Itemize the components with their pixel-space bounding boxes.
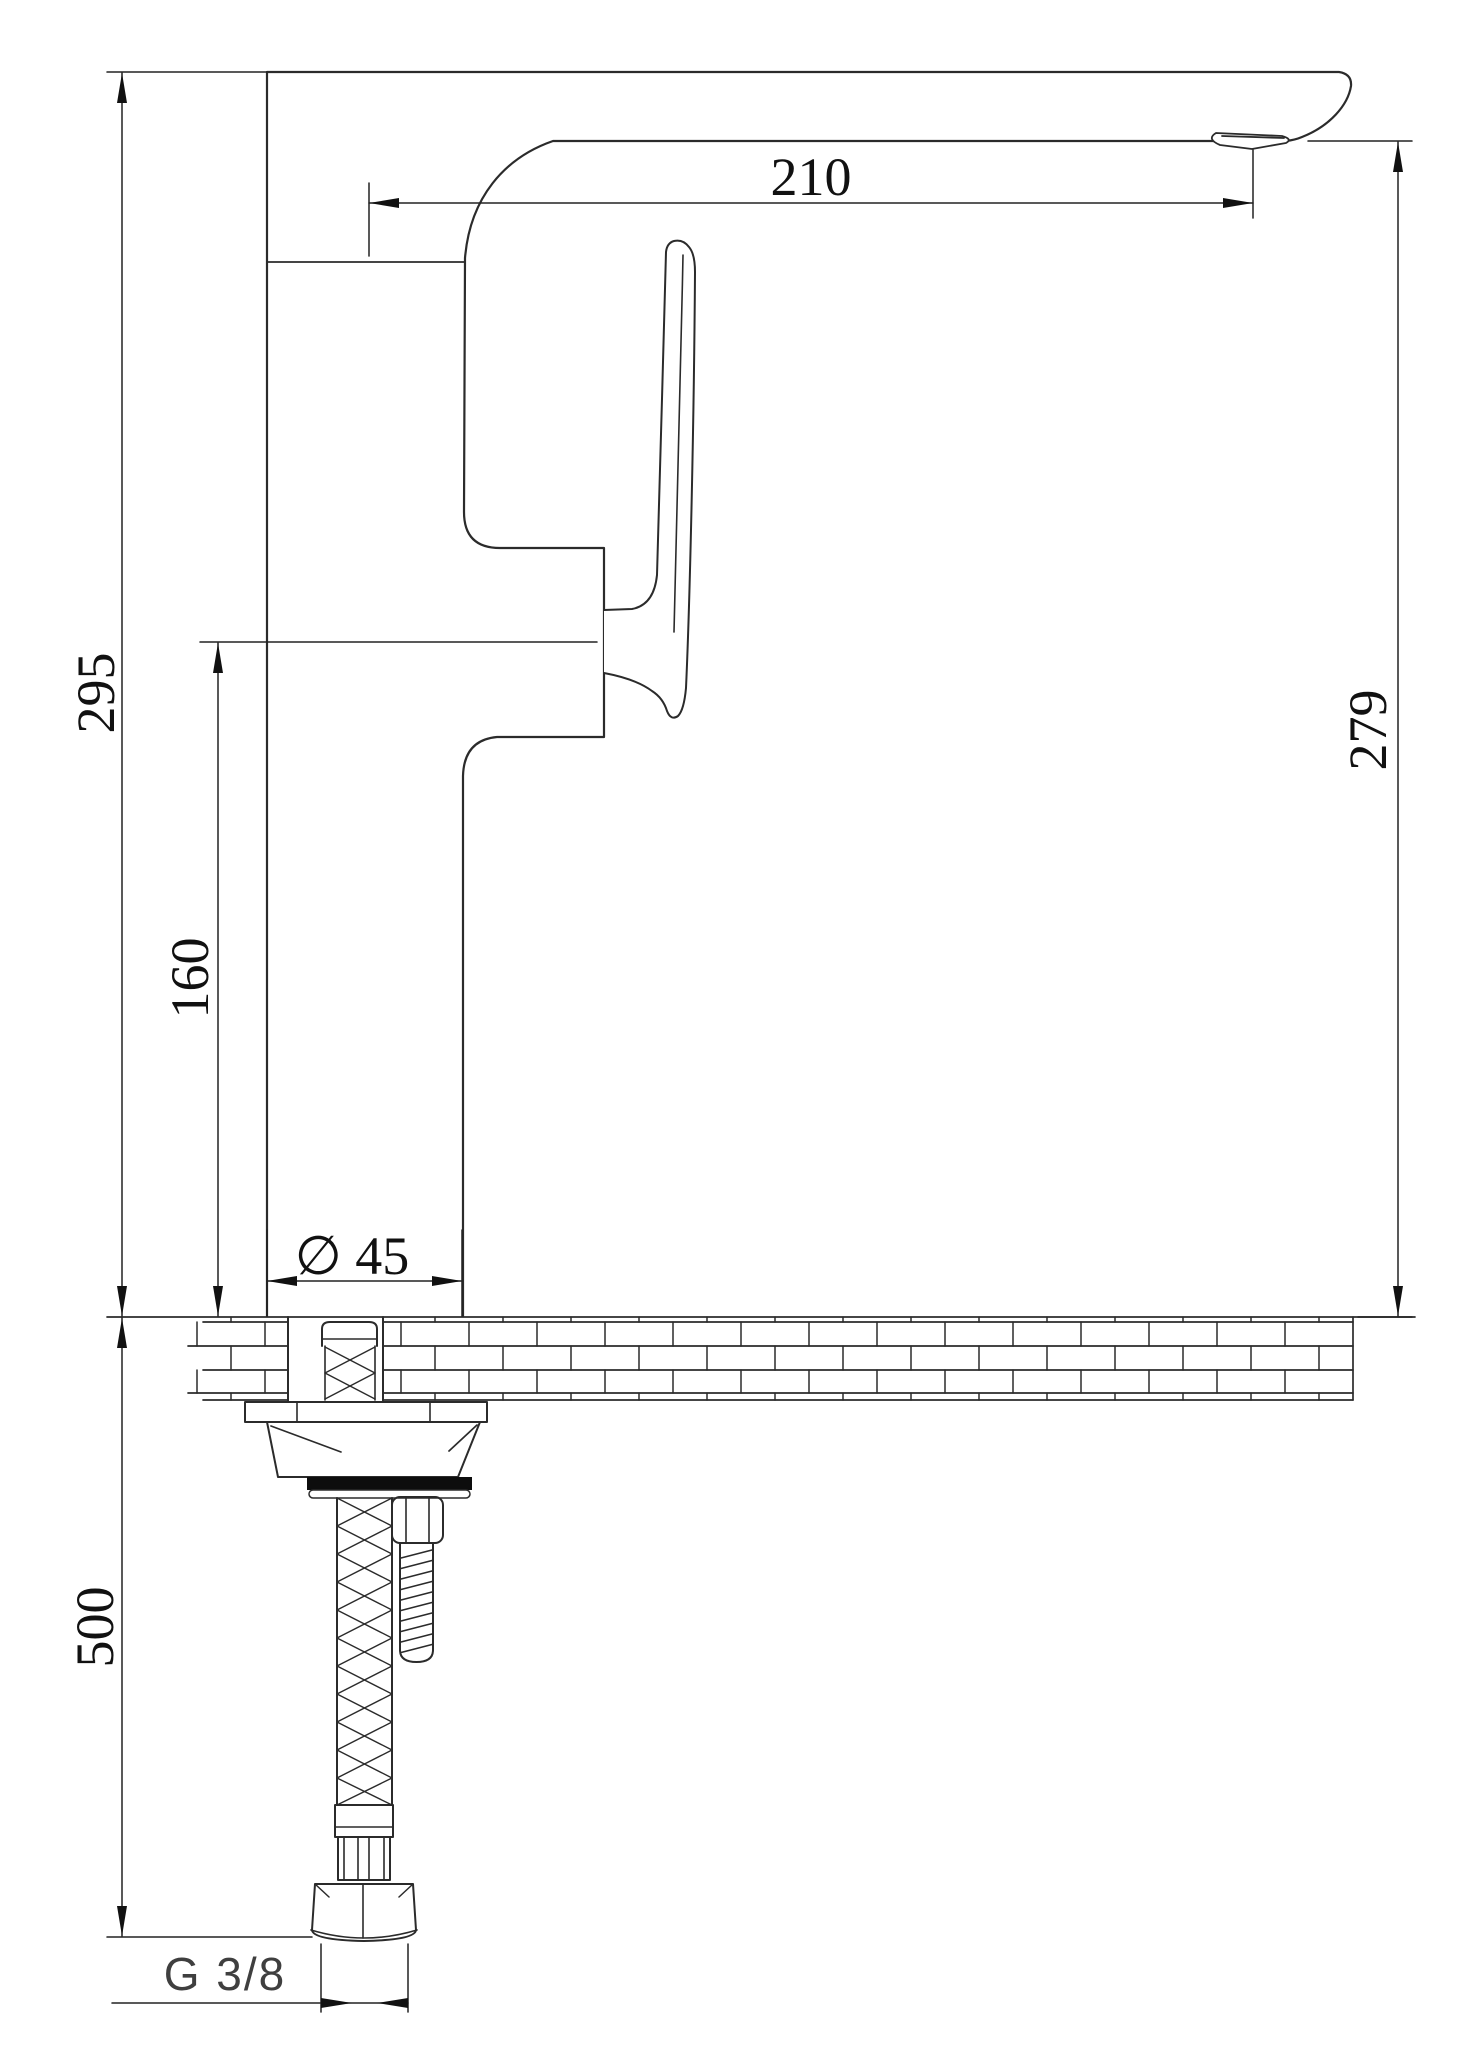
dimension-295: [107, 72, 267, 1316]
dimension-160: [200, 642, 597, 1316]
drawing-linework: [0, 0, 1477, 2046]
label-base-to-handle: 160: [162, 898, 218, 1058]
braided-hose: [337, 1498, 392, 1805]
hose-end-fitting: [335, 1805, 393, 1880]
mounting-nut: [267, 1422, 480, 1477]
mounting-washer: [245, 1402, 487, 1422]
o-ring-seal: [307, 1477, 472, 1498]
dimension-500: [107, 1318, 312, 1937]
g38-nut: [311, 1884, 417, 1941]
faucet-outline: [267, 72, 1351, 1316]
faucet-shank: [288, 1317, 383, 1402]
faucet-technical-drawing: 210 295 160 279 ∅ 45 500 G 3/8: [0, 0, 1477, 2046]
label-spout-reach: 210: [751, 148, 871, 206]
handle-lever: [604, 241, 695, 718]
aerator: [1212, 133, 1289, 149]
label-spout-height: 279: [1340, 650, 1396, 810]
label-overall-height: 295: [68, 613, 124, 773]
countertop: [107, 1317, 1415, 1400]
label-hose-length: 500: [67, 1547, 123, 1707]
brick-hatch: [197, 1317, 1319, 1400]
label-thread-size: G 3/8: [125, 1946, 325, 2002]
threaded-stud: [392, 1497, 443, 1662]
label-base-diameter: ∅ 45: [272, 1227, 432, 1285]
